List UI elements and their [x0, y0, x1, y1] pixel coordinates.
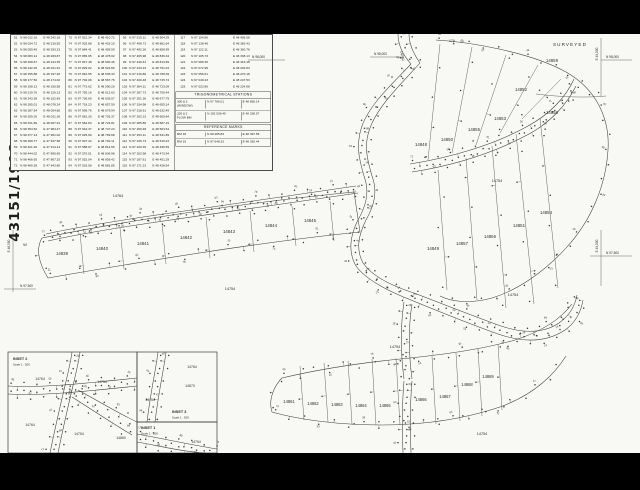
survey-point — [186, 214, 188, 216]
lot-divider — [80, 233, 84, 274]
survey-point — [411, 36, 413, 38]
survey-point — [407, 416, 409, 418]
survey-point — [536, 335, 538, 337]
road-14754-cluster-bottom-edge-1 — [411, 300, 583, 340]
survey-point — [438, 37, 440, 39]
lot-divider — [452, 47, 472, 153]
survey-point — [348, 426, 350, 428]
survey-point — [601, 178, 603, 180]
survey-point — [82, 355, 84, 357]
survey-point — [413, 319, 415, 321]
survey-point — [204, 205, 206, 207]
survey-point — [255, 195, 257, 197]
grid-marks — [4, 38, 632, 292]
survey-point — [227, 244, 229, 246]
survey-point-number: 90 — [59, 220, 64, 225]
survey-point — [358, 231, 360, 233]
survey-point — [221, 205, 223, 207]
survey-point — [576, 231, 578, 233]
survey-point — [547, 333, 549, 335]
survey-point — [460, 90, 462, 92]
survey-point — [413, 358, 415, 360]
survey-point — [485, 411, 487, 413]
survey-point — [525, 397, 527, 399]
survey-point — [333, 203, 335, 205]
survey-point — [391, 76, 393, 78]
survey-point — [64, 232, 66, 234]
lot-label-14839: 14839 — [56, 251, 69, 256]
survey-point — [406, 396, 408, 398]
survey-point — [605, 149, 607, 151]
survey-point — [129, 223, 131, 225]
survey-point — [281, 381, 283, 383]
survey-point — [83, 235, 85, 237]
survey-point — [600, 104, 602, 106]
survey-point — [364, 158, 366, 160]
survey-point — [400, 36, 402, 38]
survey-tick — [360, 209, 363, 210]
survey-point — [396, 323, 398, 325]
survey-point — [243, 199, 245, 201]
survey-point — [121, 389, 123, 391]
survey-point — [371, 195, 373, 197]
survey-point-number: 10 — [572, 227, 575, 231]
survey-point — [509, 148, 511, 150]
grid-label-n97500-1: N 97,500 — [606, 251, 619, 255]
survey-point — [278, 207, 280, 209]
survey-tick — [375, 97, 378, 99]
road-14760-edge-right — [409, 34, 420, 63]
survey-point — [372, 357, 374, 359]
inset-road-label-14754-1: 14754 — [97, 380, 107, 384]
grid-label-e49000-1: E 49,000 — [595, 47, 599, 60]
survey-point — [207, 211, 209, 213]
survey-point — [450, 312, 452, 314]
survey-point — [452, 160, 454, 162]
survey-point — [527, 54, 529, 56]
survey-point — [301, 197, 303, 199]
survey-point — [498, 135, 500, 137]
survey-point — [303, 368, 305, 370]
inset3-title: INSET 3 — [172, 410, 186, 414]
survey-point-number: 26 — [362, 415, 366, 419]
survey-tick — [111, 423, 113, 426]
survey-point — [488, 148, 490, 150]
survey-point — [495, 155, 497, 157]
survey-point-number: 71 — [410, 154, 414, 158]
survey-point — [65, 431, 67, 433]
survey-point — [390, 293, 392, 295]
survey-point — [420, 67, 422, 69]
survey-point — [332, 184, 334, 186]
inset-road-label-14764-2: 14764 — [25, 423, 35, 427]
survey-point — [358, 367, 360, 369]
survey-point — [72, 406, 74, 408]
survey-point — [448, 357, 450, 359]
survey-tick — [510, 400, 511, 403]
survey-point — [149, 386, 151, 388]
cluster-outer-boundary — [436, 40, 608, 302]
lot-divider — [432, 356, 436, 424]
survey-point — [371, 163, 373, 165]
survey-point-number: 60 — [135, 252, 140, 257]
road-label-14754-e: 14754 — [477, 432, 488, 436]
lot-divider — [396, 358, 400, 425]
lot-label-14852: 14852 — [515, 87, 528, 92]
survey-point — [88, 379, 90, 381]
road-exit-edge-1 — [401, 302, 404, 379]
survey-point — [348, 260, 350, 262]
survey-point-number: 17 — [532, 378, 537, 383]
survey-point — [472, 140, 474, 142]
survey-point — [151, 411, 153, 413]
survey-point — [54, 410, 56, 412]
survey-point — [369, 184, 371, 186]
survey-point-number: 30 — [458, 341, 463, 346]
survey-point — [303, 204, 305, 206]
station-mark-17a — [461, 40, 463, 42]
survey-point — [63, 372, 65, 374]
survey-point — [400, 376, 402, 378]
survey-point — [50, 230, 52, 232]
bottom-band-bottom-boundary — [272, 356, 566, 425]
lot-divider — [162, 223, 166, 264]
survey-point-number: 89 — [408, 427, 412, 432]
survey-point — [545, 321, 547, 323]
survey-point — [341, 190, 343, 192]
survey-point — [553, 103, 555, 105]
survey-point-number: 89 — [179, 433, 184, 438]
survey-point — [532, 118, 534, 120]
lot-label-14851: 14851 — [513, 223, 526, 228]
survey-point-number: 12 — [227, 238, 232, 243]
survey-point — [375, 361, 377, 363]
survey-point — [63, 444, 65, 446]
lot-label-14866: 14866 — [415, 397, 427, 402]
survey-point — [157, 373, 159, 375]
survey-point — [141, 219, 143, 221]
survey-point — [43, 241, 45, 243]
survey-point-number: 60 — [393, 400, 397, 404]
survey-point — [461, 346, 463, 348]
survey-point — [10, 382, 12, 384]
survey-point — [30, 398, 32, 400]
survey-tick — [520, 334, 521, 338]
lot-label-14841: 14841 — [137, 241, 150, 246]
survey-point — [589, 94, 591, 96]
survey-point — [447, 167, 449, 169]
survey-point — [405, 422, 407, 424]
survey-point — [462, 147, 464, 149]
survey-point — [572, 99, 574, 101]
road-14754-main-edge-left — [351, 64, 411, 300]
survey-tick — [494, 142, 495, 145]
survey-point — [356, 159, 358, 161]
survey-point — [363, 196, 365, 198]
survey-point — [138, 258, 140, 260]
survey-point-texture: 7769322417968981746659514436292114746659… — [10, 34, 610, 453]
survey-point — [516, 341, 518, 343]
survey-point — [82, 393, 84, 395]
survey-point — [342, 199, 344, 201]
survey-point — [426, 164, 428, 166]
roads — [46, 34, 583, 453]
survey-point-number: 65 — [11, 377, 16, 382]
survey-point — [257, 240, 259, 242]
survey-point — [52, 237, 54, 239]
survey-point — [427, 302, 429, 304]
survey-point — [316, 201, 318, 203]
survey-point — [53, 423, 55, 425]
survey-point — [55, 444, 57, 446]
survey-point — [364, 128, 366, 130]
survey-point — [500, 346, 502, 348]
survey-point — [406, 383, 408, 385]
lot-divider — [300, 366, 304, 420]
survey-point — [434, 172, 436, 174]
survey-point — [503, 406, 505, 408]
survey-point — [387, 287, 389, 289]
survey-point — [370, 139, 372, 141]
road-exit-edge-2 — [409, 304, 412, 379]
survey-point — [384, 87, 386, 89]
survey-point-number: 16 — [309, 188, 313, 192]
survey-point-number: 72 — [40, 447, 45, 452]
survey-point — [430, 294, 432, 296]
survey-point — [43, 388, 45, 390]
survey-point — [414, 168, 416, 170]
survey-point — [125, 268, 127, 270]
survey-point — [374, 270, 376, 272]
survey-point — [442, 287, 444, 289]
survey-point — [402, 354, 404, 356]
lot-label-14858: 14858 — [546, 110, 559, 115]
survey-point — [378, 421, 380, 423]
survey-tick — [85, 395, 87, 398]
inset-road-label-14754-3: 14754 — [145, 398, 155, 402]
survey-point — [377, 106, 379, 108]
survey-point-number: 64 — [221, 199, 225, 204]
left-parcel-band — [39, 192, 360, 278]
survey-point — [127, 375, 129, 377]
survey-point — [499, 129, 501, 131]
survey-tick — [455, 318, 456, 321]
survey-point — [79, 268, 81, 270]
lot-label-14869: 14869 — [482, 374, 494, 379]
survey-point — [442, 315, 444, 317]
survey-point — [363, 251, 365, 253]
survey-point-number: 77 — [401, 34, 406, 37]
survey-point — [539, 90, 541, 92]
survey-point — [549, 225, 551, 227]
survey-point — [553, 118, 555, 120]
survey-point-number: 78 — [254, 190, 258, 194]
grid-label-e46500: E 46,500 — [7, 239, 11, 252]
survey-point — [397, 442, 399, 444]
survey-point — [544, 128, 546, 130]
survey-point — [168, 253, 170, 255]
survey-point — [567, 302, 569, 304]
survey-point-number: 29 — [352, 189, 356, 193]
survey-point — [450, 152, 452, 154]
survey-point — [400, 290, 402, 292]
survey-point-number: 39 — [282, 367, 286, 371]
right-parcel-cluster — [428, 40, 608, 308]
surveyed-label: SURVEYED — [553, 42, 587, 47]
survey-tick — [548, 378, 550, 380]
survey-point-number: 62 — [161, 351, 166, 356]
survey-point — [224, 209, 226, 211]
survey-point — [445, 307, 447, 309]
survey-point — [370, 119, 372, 121]
survey-point — [303, 242, 305, 244]
survey-point-number: 50 — [48, 376, 52, 380]
survey-point — [463, 316, 465, 318]
survey-point — [127, 383, 129, 385]
survey-point — [108, 393, 110, 395]
survey-point-number: 43 — [526, 48, 530, 53]
survey-point — [363, 421, 365, 423]
survey-point — [527, 327, 529, 329]
survey-point — [265, 210, 267, 212]
survey-point — [524, 285, 526, 287]
survey-point — [386, 106, 388, 108]
survey-point — [567, 307, 569, 309]
survey-point — [406, 305, 408, 307]
survey-tick — [532, 133, 534, 136]
left-band-bottom-boundary — [48, 232, 360, 278]
survey-point — [405, 356, 407, 358]
survey-point — [322, 195, 324, 197]
survey-point — [543, 135, 545, 137]
survey-point — [398, 291, 400, 293]
survey-point — [120, 422, 122, 424]
survey-tick — [418, 304, 419, 307]
inset1-title: INSET 1 — [141, 426, 155, 430]
survey-point — [357, 272, 359, 274]
survey-point — [414, 435, 416, 437]
lot-divider — [540, 118, 558, 288]
survey-point — [281, 193, 283, 195]
survey-point — [508, 288, 510, 290]
survey-point — [217, 201, 219, 203]
survey-point — [64, 406, 66, 408]
survey-point — [502, 322, 504, 324]
survey-point — [524, 132, 526, 134]
survey-point — [469, 237, 471, 239]
survey-point-number: 18 — [544, 121, 548, 125]
survey-point — [411, 77, 413, 79]
survey-point — [406, 435, 408, 437]
survey-point — [409, 378, 411, 380]
survey-point-number: 73 — [549, 266, 553, 270]
survey-point — [398, 337, 400, 339]
lot-label-14850: 14850 — [441, 137, 454, 142]
survey-point — [555, 364, 557, 366]
survey-point-number: 18 — [99, 213, 103, 217]
survey-point — [160, 355, 162, 357]
survey-point — [509, 57, 511, 59]
survey-point — [404, 343, 406, 345]
survey-point — [412, 345, 414, 347]
survey-point — [180, 213, 182, 215]
road-label-14754-d: 14754 — [390, 345, 401, 349]
survey-tick — [530, 125, 532, 128]
survey-point-number: 65 — [449, 410, 454, 415]
survey-point — [598, 92, 600, 94]
survey-point — [437, 418, 439, 420]
survey-point — [361, 185, 363, 187]
survey-point — [556, 64, 558, 66]
lot-divider — [516, 134, 534, 304]
survey-point — [251, 201, 253, 203]
survey-point — [62, 388, 64, 390]
survey-point-number: 93 — [579, 321, 584, 326]
road-bottom-exit-edge-1 — [402, 381, 404, 453]
survey-point — [149, 373, 151, 375]
survey-point — [167, 217, 169, 219]
lot-label-14848: 14848 — [415, 142, 428, 147]
road-label-14754-a: 14754 — [225, 287, 236, 291]
survey-tick — [491, 332, 492, 335]
survey-point — [139, 212, 141, 214]
survey-point-number: 44 — [487, 321, 491, 326]
lot-label-14844: 14844 — [265, 223, 278, 228]
survey-point — [283, 200, 285, 202]
inset-road-label-14764-3: 14764 — [187, 365, 197, 369]
lot-label-14842: 14842 — [180, 235, 193, 240]
survey-point-number: 69 — [396, 55, 401, 60]
survey-point — [44, 235, 46, 237]
survey-point — [209, 450, 211, 452]
lot-label-14855: 14855 — [468, 127, 481, 132]
survey-point-number: 41 — [496, 411, 501, 416]
lot-divider — [466, 158, 477, 300]
survey-point — [497, 245, 499, 247]
survey-point-number: 78 — [370, 352, 374, 357]
survey-point — [500, 142, 502, 144]
survey-point-number: 45 — [393, 440, 398, 445]
inset1-scale: Scale 1 : 500 — [141, 432, 158, 436]
lot-divider — [476, 55, 506, 145]
survey-point — [149, 226, 151, 228]
plan-sheet: 43151/1998 51N 98 012.16E 48 342.1852N 9… — [0, 34, 640, 453]
survey-point-number: 96 — [362, 102, 366, 107]
survey-point-number: 66 — [428, 312, 433, 317]
survey-point — [583, 307, 585, 309]
survey-point — [373, 127, 375, 129]
survey-point-number: 36 — [182, 259, 187, 264]
survey-point — [361, 145, 363, 147]
survey-point — [209, 219, 211, 221]
survey-point-number: 63 — [432, 164, 436, 169]
survey-point — [587, 221, 589, 223]
grid-label-n97500-2: N 97,500 — [20, 284, 33, 288]
survey-point-number: 75 — [272, 246, 276, 250]
survey-point — [559, 329, 561, 331]
survey-point-number: 91 — [438, 34, 442, 36]
survey-point — [74, 393, 76, 395]
survey-point — [226, 215, 228, 217]
survey-point-number: 20 — [83, 384, 88, 389]
survey-point — [356, 259, 358, 261]
road-14764-left-edge-1 — [46, 186, 356, 234]
survey-point-number: 92 — [117, 402, 121, 407]
survey-point — [559, 325, 561, 327]
survey-point — [257, 202, 259, 204]
survey-point — [294, 190, 296, 192]
survey-point — [433, 305, 435, 307]
